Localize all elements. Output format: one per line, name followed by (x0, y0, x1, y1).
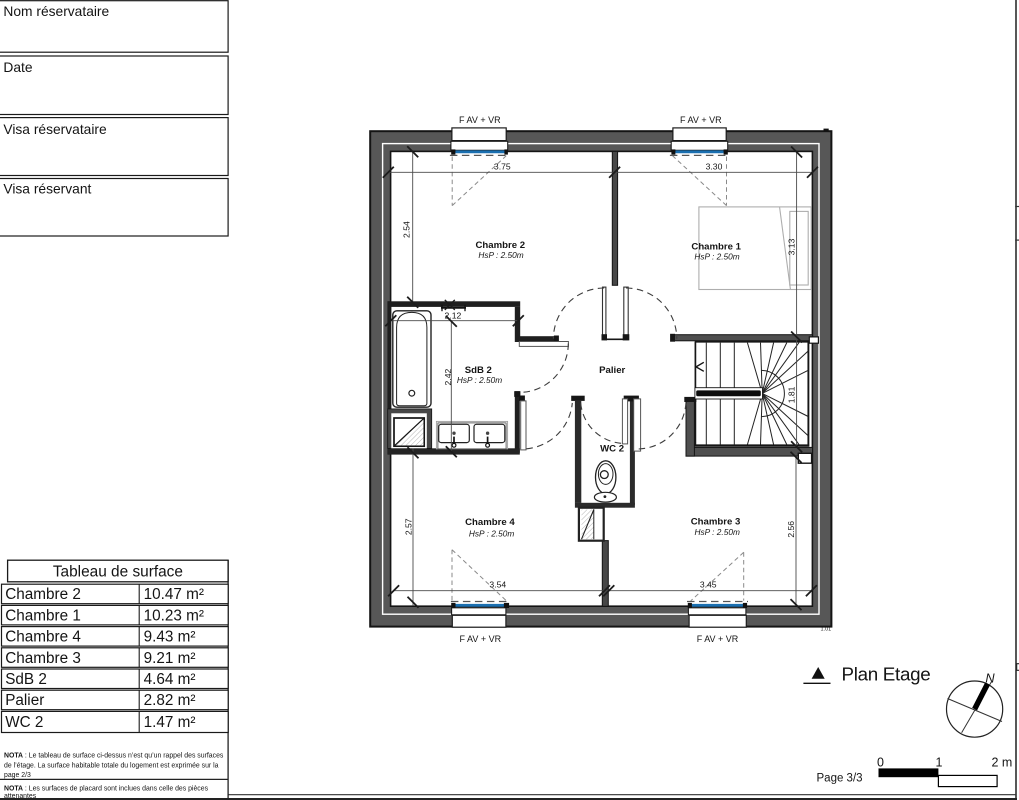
svg-text:1: 1 (936, 756, 943, 770)
svg-text:2.12: 2.12 (445, 311, 462, 321)
svg-text:N: N (985, 671, 995, 686)
svg-text:0: 0 (877, 756, 884, 770)
svg-text:HsP : 2.50m: HsP : 2.50m (694, 252, 739, 262)
svg-text:Visa réservataire: Visa réservataire (3, 122, 107, 137)
svg-text:F AV + VR: F AV + VR (680, 115, 722, 125)
svg-text:de l’étage. La surface habitab: de l’étage. La surface habitable totale … (4, 762, 219, 769)
svg-text:Visa réservant: Visa réservant (3, 182, 91, 197)
svg-text:1.47 m²: 1.47 m² (144, 714, 196, 731)
svg-text:9.21 m²: 9.21 m² (144, 650, 196, 667)
svg-text:Palier: Palier (5, 692, 44, 709)
svg-text:Palier: Palier (599, 365, 625, 376)
svg-text:2.54: 2.54 (401, 221, 411, 238)
svg-text:Chambre 4: Chambre 4 (465, 517, 515, 528)
svg-text:Chambre 2: Chambre 2 (5, 586, 81, 603)
svg-text:Chambre 3: Chambre 3 (691, 517, 741, 528)
svg-text:2.57: 2.57 (403, 518, 413, 535)
svg-text:Chambre 4: Chambre 4 (5, 629, 81, 646)
svg-text:3.45: 3.45 (700, 580, 717, 590)
svg-text:2 m: 2 m (992, 756, 1013, 770)
svg-text:NOTA : Le tableau de surface c: NOTA : Le tableau de surface ci-dessus n… (4, 753, 224, 760)
svg-text:2.42: 2.42 (443, 369, 453, 386)
svg-text:HsP : 2.50m: HsP : 2.50m (478, 250, 523, 260)
svg-text:Chambre 1: Chambre 1 (5, 607, 81, 624)
svg-text:1.01: 1.01 (821, 627, 832, 633)
svg-text:10.47 m²: 10.47 m² (144, 586, 204, 603)
svg-text:HsP : 2.50m: HsP : 2.50m (469, 529, 514, 539)
svg-text:F AV + VR: F AV + VR (459, 634, 501, 644)
svg-text:Nom réservataire: Nom réservataire (3, 4, 109, 19)
svg-text:attenantes: attenantes (4, 793, 37, 800)
svg-text:WC 2: WC 2 (600, 444, 624, 455)
svg-text:Tableau de surface: Tableau de surface (53, 564, 183, 581)
svg-text:3.54: 3.54 (489, 580, 506, 590)
svg-text:WC 2: WC 2 (5, 714, 43, 731)
svg-text:3.75: 3.75 (494, 162, 511, 172)
svg-text:Plan Etage: Plan Etage (842, 664, 931, 685)
svg-text:Date: Date (3, 60, 32, 75)
svg-text:Chambre 3: Chambre 3 (5, 650, 81, 667)
svg-text:3.13: 3.13 (786, 238, 796, 255)
svg-text:page 2/3: page 2/3 (4, 772, 31, 779)
svg-text:Page 3/3: Page 3/3 (817, 773, 863, 785)
svg-text:HsP : 2.50m: HsP : 2.50m (457, 375, 502, 385)
svg-text:4.64 m²: 4.64 m² (144, 671, 196, 688)
svg-text:F AV + VR: F AV + VR (697, 634, 739, 644)
svg-text:2.56: 2.56 (786, 521, 796, 538)
svg-text:2.82 m²: 2.82 m² (144, 692, 196, 709)
svg-text:1.81: 1.81 (787, 386, 797, 403)
svg-text:10.23 m²: 10.23 m² (144, 607, 204, 624)
svg-text:HsP : 2.50m: HsP : 2.50m (695, 527, 740, 537)
svg-text:SdB 2: SdB 2 (5, 671, 47, 688)
svg-text:F AV + VR: F AV + VR (459, 115, 501, 125)
svg-text:NOTA : Les surfaces de placard: NOTA : Les surfaces de placard sont incl… (4, 785, 209, 792)
svg-text:9.43 m²: 9.43 m² (144, 629, 196, 646)
svg-text:3.30: 3.30 (706, 162, 723, 172)
